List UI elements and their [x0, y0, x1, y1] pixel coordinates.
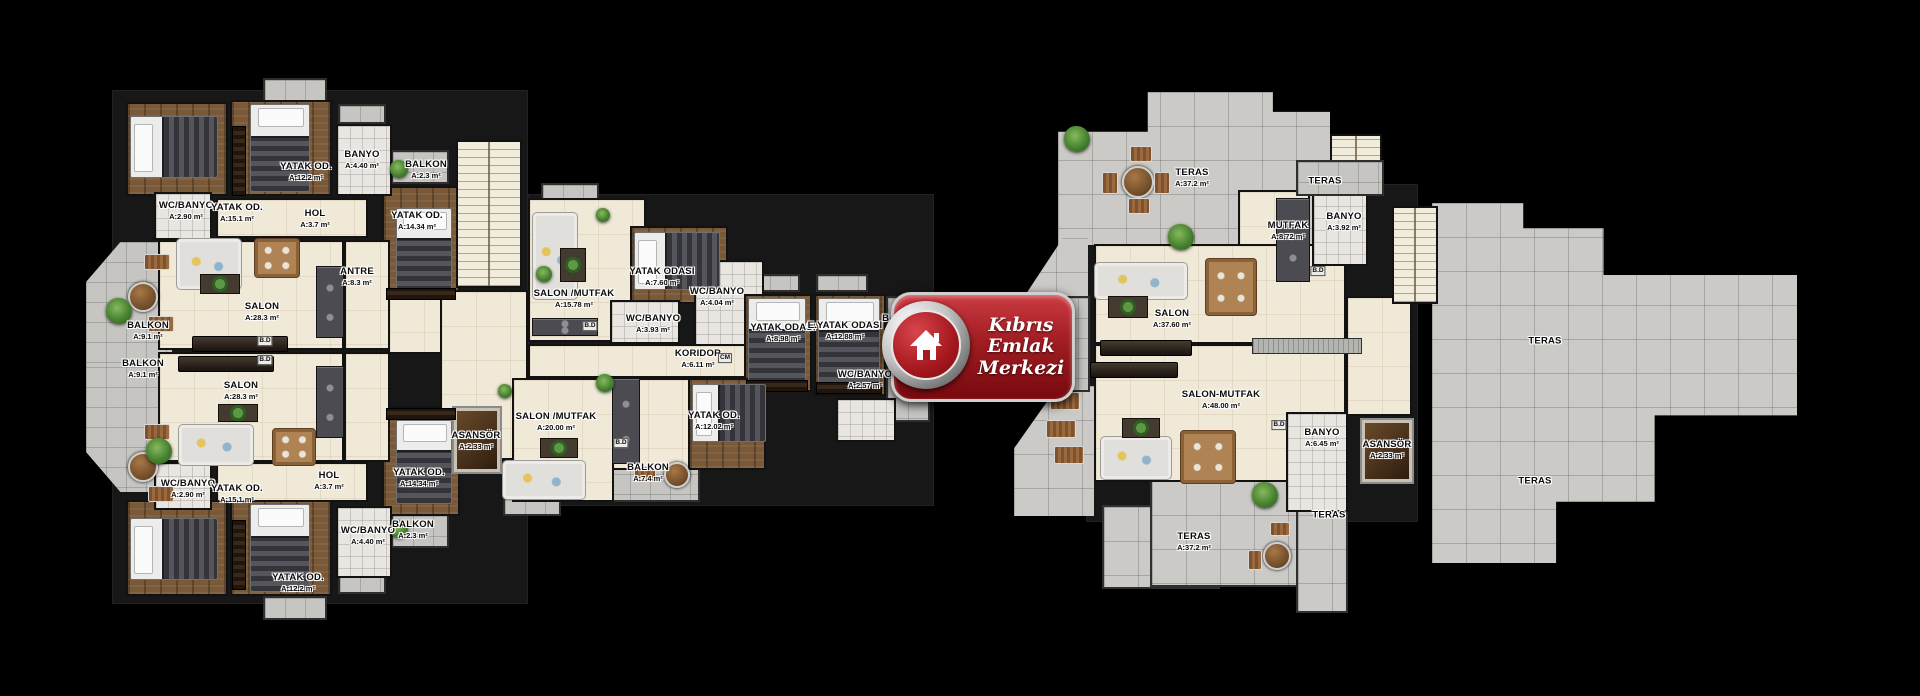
dining-table-icon	[254, 238, 300, 278]
room-label: SALONA:28.3 m²	[224, 381, 258, 401]
plant-icon	[596, 374, 614, 392]
room-area: A:2.3 m²	[392, 531, 434, 540]
room-label: BALKONA:9.1 m²	[122, 359, 164, 379]
room-name: WC/BANYO	[626, 314, 680, 325]
room-area: A:3.7 m²	[314, 482, 344, 491]
room-area: A:4.40 m²	[344, 161, 379, 170]
bathroom-floor	[836, 398, 896, 442]
lounge-chair-icon	[1054, 446, 1084, 464]
room-area: A:15.1 m²	[211, 214, 263, 223]
room-label: ASANSÖRA:2.33 m²	[1363, 440, 1412, 460]
room-name: YATAK ODASI	[750, 323, 815, 334]
sofa-icon	[178, 424, 254, 466]
room-label: SALON-MUTFAKA:48.00 m²	[1182, 390, 1260, 410]
staircase	[1392, 206, 1438, 304]
brand-logo: Kıbrıs Emlak Merkezi	[891, 292, 1075, 402]
room-area: A:2.90 m²	[161, 490, 215, 499]
room-label: BALKONA:9.1 m²	[127, 321, 169, 341]
room-label: TERAS	[1312, 511, 1345, 522]
room-area: A:3.93 m²	[626, 325, 680, 334]
room-name: HOL	[314, 471, 344, 482]
room-floor	[1346, 296, 1412, 416]
room-label: TERAS	[1518, 477, 1551, 488]
room-area: A:9.1 m²	[122, 370, 164, 379]
room-label: WC/BANYOA:4.40 m²	[341, 526, 395, 546]
room-label: YATAK OD.A:15.1 m²	[211, 203, 263, 223]
room-area: A:2.3 m²	[405, 171, 447, 180]
floor-plan-canvas: YATAK OD.A:12.2 m²BANYOA:4.40 m²WC/BANYO…	[0, 0, 1920, 696]
room-area: A:37.2 m²	[1175, 179, 1209, 188]
room-label: YATAK OD.A:12.2 m²	[280, 162, 332, 182]
room-label: WC/BANYOA:4.04 m²	[690, 287, 744, 307]
coffee-table-icon	[540, 438, 578, 458]
dining-table-icon	[1180, 430, 1236, 484]
room-label: TERAS	[1308, 177, 1341, 188]
room-area: A:12.02 m²	[688, 422, 740, 431]
room-area: A:3.7 m²	[300, 220, 330, 229]
fixture-tag: B.D	[582, 321, 597, 331]
logo-emblem	[882, 301, 970, 389]
room-label: SALONA:28.3 m²	[245, 302, 279, 322]
room-area: A:37.60 m²	[1153, 320, 1191, 329]
room-area: A:2.33 m²	[1363, 451, 1412, 460]
room-area: A:20.00 m²	[516, 423, 597, 432]
balcony-tile	[338, 104, 386, 124]
terrace-tile	[1432, 203, 1797, 563]
plant-icon	[146, 438, 172, 464]
coffee-table-icon	[218, 404, 258, 422]
room-floor	[344, 240, 390, 350]
room-name: BALKON	[405, 160, 447, 171]
balcony-tile	[816, 274, 868, 292]
room-name: ASANSÖR	[452, 431, 501, 442]
fixture-tag: B.D	[257, 355, 272, 365]
room-area: A:7.60 m²	[629, 278, 694, 287]
coffee-table-icon	[560, 248, 586, 282]
room-name: TERAS	[1518, 477, 1551, 488]
room-name: YATAK OD.	[280, 162, 332, 173]
room-area: A:12.2 m²	[272, 584, 324, 593]
lounge-chair-icon	[1270, 522, 1290, 536]
room-label: SALON /MUTFAKA:15.78 m²	[534, 289, 615, 309]
room-area: A:12.2 m²	[280, 173, 332, 182]
room-area: A:2.90 m²	[159, 212, 213, 221]
room-area: A:4.04 m²	[690, 298, 744, 307]
room-area: A:8.72 m²	[1268, 232, 1309, 241]
room-area: A:15.1 m²	[211, 495, 263, 504]
room-area: A:37.2 m²	[1177, 543, 1211, 552]
tv-console	[1100, 340, 1192, 356]
terrace-tile	[1022, 238, 1088, 300]
room-label: HOLA:3.7 m²	[300, 209, 330, 229]
room-label: HOLA:3.7 m²	[314, 471, 344, 491]
room-name: BANYO	[1304, 428, 1339, 439]
coffee-table-icon	[1108, 296, 1148, 318]
balcony-tile	[263, 596, 327, 620]
room-label: WC/BANYOA:2.90 m²	[159, 201, 213, 221]
room-name: YATAK OD.	[391, 211, 443, 222]
room-label: BANYOA:3.92 m²	[1326, 212, 1361, 232]
room-label: ANTREA:8.3 m²	[340, 267, 374, 287]
fixture-tag: CM	[718, 353, 732, 363]
plant-icon	[596, 208, 610, 222]
sofa-icon	[502, 460, 586, 500]
room-name: SALON /MUTFAK	[534, 289, 615, 300]
plant-icon	[498, 384, 512, 398]
fixture-tag: B.D	[613, 438, 628, 448]
room-label: YATAK ODASIA:7.60 m²	[629, 267, 694, 287]
sofa-icon	[1100, 436, 1172, 480]
fixture-tag: B.D	[1310, 266, 1325, 276]
room-name: YATAK ODASI	[629, 267, 694, 278]
staircase	[456, 140, 522, 288]
wardrobe-icon	[232, 126, 246, 196]
room-label: YATAK OD.A:14.34 m²	[391, 211, 443, 231]
room-name: WC/BANYO	[690, 287, 744, 298]
room-name: TERAS	[1528, 337, 1561, 348]
room-name: ASANSÖR	[1363, 440, 1412, 451]
room-area: A:8.98 m²	[750, 334, 815, 343]
fixture-tag: B.D	[257, 336, 272, 346]
room-area: A:28.3 m²	[245, 313, 279, 322]
room-name: SALON	[1153, 309, 1191, 320]
lounge-chair-icon	[1102, 172, 1118, 194]
lounge-chair-icon	[1130, 146, 1152, 162]
wardrobe-icon	[386, 288, 456, 300]
room-name: SALON /MUTFAK	[516, 412, 597, 423]
room-label: BALKONA:7.4 m²	[627, 463, 669, 483]
room-label: WC/BANYOA:2.90 m²	[161, 479, 215, 499]
room-label: TERASA:37.2 m²	[1175, 168, 1209, 188]
plant-icon	[1064, 126, 1090, 152]
logo-text: Kıbrıs Emlak Merkezi	[974, 299, 1068, 395]
plant-icon	[1252, 482, 1278, 508]
kitchen-counter	[612, 378, 640, 464]
room-label: YATAK ODASIA:8.98 m²	[750, 323, 815, 343]
room-label: BALKONA:2.3 m²	[405, 160, 447, 180]
balcony-tile	[263, 78, 327, 102]
room-name: TERAS	[1177, 532, 1211, 543]
room-name: KORIDOR	[675, 349, 721, 360]
room-name: BANYO	[1326, 212, 1361, 223]
room-label: SALONA:37.60 m²	[1153, 309, 1191, 329]
room-label: E.YATAK ODASIA:12.88 m²	[808, 321, 883, 341]
room-area: A:2.57 m²	[838, 381, 892, 390]
room-label: KORIDORA:6.11 m²	[675, 349, 721, 369]
room-label: YATAK OD.A:12.2 m²	[272, 573, 324, 593]
room-name: BALKON	[627, 463, 669, 474]
room-name: TERAS	[1312, 511, 1345, 522]
dining-table-icon	[1205, 258, 1257, 316]
room-label: YATAK OD.A:14.34 m²	[393, 468, 445, 488]
tv-console	[192, 336, 288, 352]
room-area: A:7.4 m²	[627, 474, 669, 483]
room-label: BANYOA:4.40 m²	[344, 150, 379, 170]
dining-table-icon	[272, 428, 316, 466]
coffee-table-icon	[1122, 418, 1160, 438]
room-area: A:12.88 m²	[808, 332, 883, 341]
room-name: SALON	[224, 381, 258, 392]
logo-emblem-inner	[891, 310, 961, 380]
room-area: A:3.92 m²	[1326, 223, 1361, 232]
plant-icon	[536, 266, 552, 282]
room-label: YATAK OD.A:12.02 m²	[688, 411, 740, 431]
room-name: YATAK OD.	[393, 468, 445, 479]
room-label: BALKONA:2.3 m²	[392, 520, 434, 540]
room-area: A:9.1 m²	[127, 332, 169, 341]
patio-table-icon	[128, 282, 158, 312]
fixture-tag: B.D	[1271, 420, 1286, 430]
room-label: MUTFAKA:8.72 m²	[1268, 221, 1309, 241]
room-name: WC/BANYO	[838, 370, 892, 381]
plant-icon	[1168, 224, 1194, 250]
room-name: WC/BANYO	[341, 526, 395, 537]
logo-line-1: Kıbrıs	[974, 315, 1068, 336]
room-label: TERASA:37.2 m²	[1177, 532, 1211, 552]
wardrobe-icon	[386, 408, 456, 420]
room-area: A:15.78 m²	[534, 300, 615, 309]
room-name: E.YATAK ODASI	[808, 321, 883, 332]
room-name: MUTFAK	[1268, 221, 1309, 232]
room-area: A:8.3 m²	[340, 278, 374, 287]
room-name: TERAS	[1175, 168, 1209, 179]
lounge-chair-icon	[1046, 420, 1076, 438]
kitchen-counter	[316, 366, 344, 438]
room-label: WC/BANYOA:2.57 m²	[838, 370, 892, 390]
room-name: YATAK OD.	[272, 573, 324, 584]
room-name: BALKON	[392, 520, 434, 531]
room-area: A:48.00 m²	[1182, 401, 1260, 410]
room-name: ANTRE	[340, 267, 374, 278]
room-floor	[344, 352, 390, 462]
room-area: A:14.34 m²	[393, 479, 445, 488]
lounge-chair-icon	[1154, 172, 1170, 194]
bed-icon	[130, 518, 218, 580]
patio-table-icon	[1263, 542, 1291, 570]
lounge-chair-icon	[144, 254, 170, 270]
room-name: WC/BANYO	[159, 201, 213, 212]
logo-line-3: Merkezi	[974, 358, 1068, 379]
room-label: BANYOA:6.45 m²	[1304, 428, 1339, 448]
bed-icon	[396, 420, 452, 504]
lounge-chair-icon	[1128, 198, 1150, 214]
room-area: A:6.45 m²	[1304, 439, 1339, 448]
wardrobe-icon	[232, 520, 246, 590]
room-name: BANYO	[344, 150, 379, 161]
bed-icon	[130, 116, 218, 178]
room-label: WC/BANYOA:3.93 m²	[626, 314, 680, 334]
logo-line-2: Emlak	[974, 336, 1068, 357]
room-area: A:28.3 m²	[224, 392, 258, 401]
room-area: A:6.11 m²	[675, 360, 721, 369]
room-name: BALKON	[127, 321, 169, 332]
room-label: YATAK OD.A:15.1 m²	[211, 484, 263, 504]
room-name: WC/BANYO	[161, 479, 215, 490]
room-area: A:4.40 m²	[341, 537, 395, 546]
room-name: YATAK OD.	[211, 203, 263, 214]
room-label: TERAS	[1528, 337, 1561, 348]
room-label: SALON /MUTFAKA:20.00 m²	[516, 412, 597, 432]
kitchen-counter	[1252, 338, 1362, 354]
room-area: A:2.33 m²	[452, 442, 501, 451]
sofa-icon	[1094, 262, 1188, 300]
room-name: YATAK OD.	[211, 484, 263, 495]
room-name: YATAK OD.	[688, 411, 740, 422]
room-name: HOL	[300, 209, 330, 220]
patio-table-icon	[1122, 166, 1154, 198]
house-icon	[906, 325, 946, 365]
coffee-table-icon	[200, 274, 240, 294]
room-area: A:14.34 m²	[391, 222, 443, 231]
room-name: BALKON	[122, 359, 164, 370]
room-name: TERAS	[1308, 177, 1341, 188]
room-name: SALON	[245, 302, 279, 313]
lounge-chair-icon	[1248, 550, 1262, 570]
room-name: SALON-MUTFAK	[1182, 390, 1260, 401]
tv-console	[1090, 362, 1178, 378]
room-label: ASANSÖRA:2.33 m²	[452, 431, 501, 451]
